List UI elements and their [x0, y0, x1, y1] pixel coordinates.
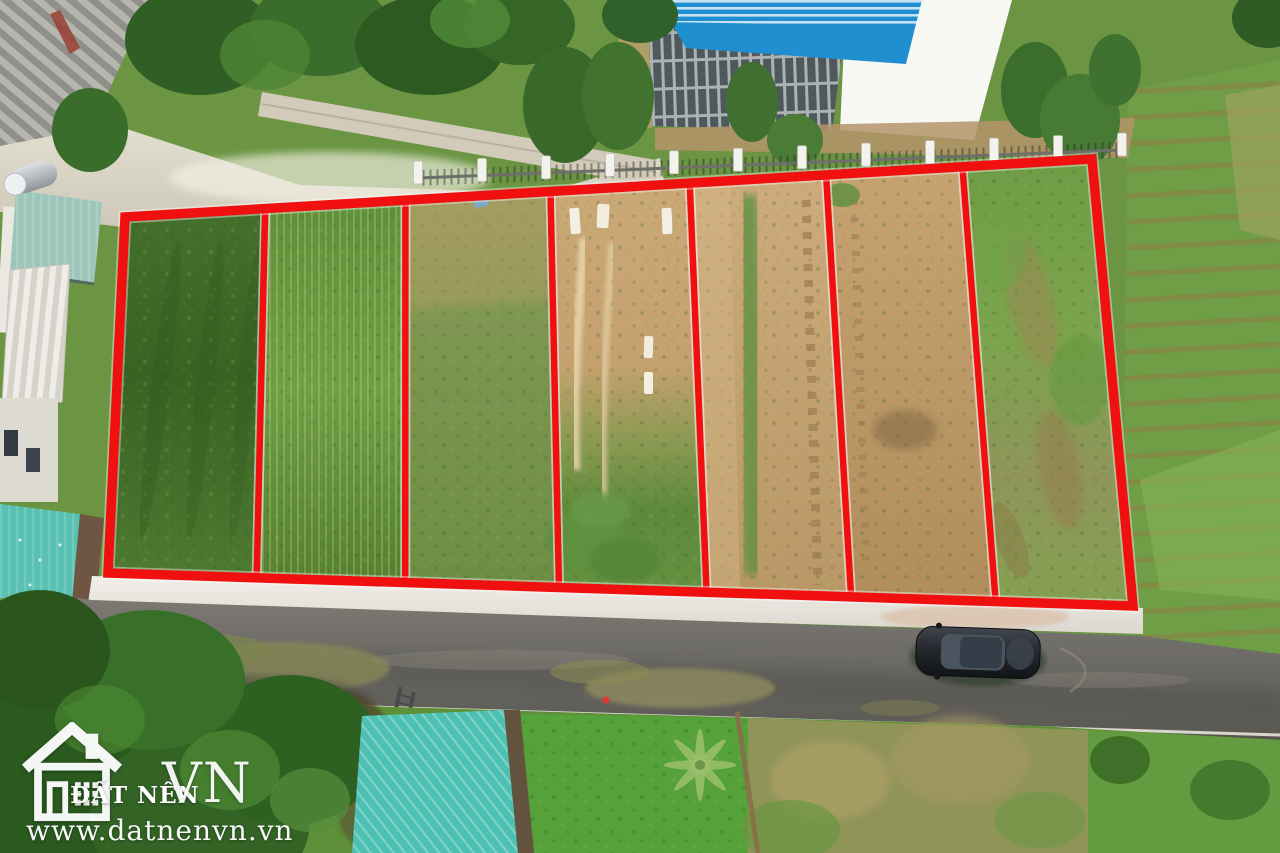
- fence-post: [862, 143, 871, 166]
- red-object: [603, 697, 610, 704]
- white-corrugated-roof: [2, 264, 70, 404]
- teal-roof-bottom-group: [352, 710, 534, 853]
- palm-plant: [664, 729, 736, 801]
- fence-post: [798, 146, 807, 169]
- survey-marker: [569, 208, 581, 235]
- survey-marker: [644, 372, 653, 394]
- fence-post: [606, 153, 615, 176]
- fence-post: [926, 141, 935, 164]
- window: [4, 430, 18, 456]
- plots-area: [108, 159, 1133, 606]
- aerial-scene: [0, 0, 1280, 853]
- fence-post: [670, 151, 679, 174]
- fence-post: [990, 138, 999, 161]
- survey-marker: [596, 204, 609, 229]
- survey-marker: [662, 208, 673, 234]
- fence-post: [414, 161, 423, 184]
- survey-marker: [644, 336, 654, 358]
- fence-post: [542, 156, 551, 179]
- fence-post: [734, 148, 743, 171]
- aerial-photo: ĐẤT NỀN VN www.datnenvn.vn: [0, 0, 1280, 853]
- fence-post: [478, 158, 487, 181]
- window: [26, 448, 40, 472]
- fence-post: [1118, 133, 1127, 156]
